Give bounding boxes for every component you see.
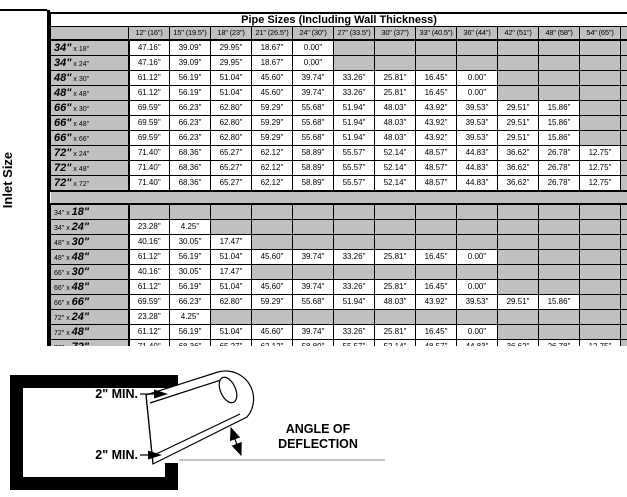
value-cell: 29.51" xyxy=(498,131,539,146)
value-cell: 56.19" xyxy=(170,250,211,265)
value-cell: 30.05" xyxy=(170,235,211,250)
page-border-line xyxy=(0,9,47,11)
row-label-small: 72" x xyxy=(54,315,72,322)
row-label-bold: 34" xyxy=(54,57,71,69)
row-label-small: x 24" xyxy=(71,151,89,158)
row-label: 66" x 30" xyxy=(51,101,129,116)
value-cell: 65.27" xyxy=(211,146,252,161)
table-row: 66" x 66"69.59"66.23"62.80"59.29"55.68"5… xyxy=(51,295,627,310)
value-cell: 71.40" xyxy=(129,340,170,347)
row-label-small: 34" x xyxy=(54,210,72,217)
angle-arrow xyxy=(231,428,241,455)
value-cell: 51.04" xyxy=(211,71,252,86)
value-cell: 58.89" xyxy=(293,176,334,192)
row-label: 66" x 48" xyxy=(51,116,129,131)
value-cell: 69.59" xyxy=(129,116,170,131)
row-label: 72" x 72" xyxy=(51,176,129,192)
empty-cell xyxy=(416,265,457,280)
row-label-bold: 48" xyxy=(54,87,71,99)
value-cell: 36.62" xyxy=(498,340,539,347)
value-cell: 47.16" xyxy=(129,40,170,56)
empty-cell xyxy=(539,280,580,295)
empty-cell xyxy=(375,56,416,71)
value-cell: 62.12" xyxy=(252,340,293,347)
empty-cell xyxy=(621,310,627,325)
value-cell: 48.03" xyxy=(375,295,416,310)
row-label-small: 48" x xyxy=(54,255,72,262)
table-row: 48" x 48"61.12"56.19"51.04"45.60"39.74"3… xyxy=(51,250,627,265)
empty-cell xyxy=(580,280,621,295)
value-cell: 62.80" xyxy=(211,116,252,131)
row-label-small: 72" x xyxy=(54,345,72,347)
empty-cell xyxy=(539,265,580,280)
empty-cell xyxy=(621,325,627,340)
value-cell: 39.74" xyxy=(293,325,334,340)
value-cell: 0.00" xyxy=(457,280,498,295)
row-label: 72" x 48" xyxy=(51,161,129,176)
value-cell: 55.57" xyxy=(334,176,375,192)
value-cell: 65.27" xyxy=(211,340,252,347)
empty-cell xyxy=(498,280,539,295)
empty-cell xyxy=(457,310,498,325)
empty-cell xyxy=(580,204,621,220)
empty-cell xyxy=(252,220,293,235)
empty-cell xyxy=(416,56,457,71)
empty-cell xyxy=(539,250,580,265)
empty-cell xyxy=(334,265,375,280)
row-label-small: x 48" xyxy=(71,121,89,128)
value-cell: 39.74" xyxy=(293,250,334,265)
value-cell: 25.81" xyxy=(375,71,416,86)
row-label-bold: 72" xyxy=(54,162,71,174)
value-cell: 48.57" xyxy=(416,146,457,161)
value-cell: 39.74" xyxy=(293,71,334,86)
value-cell: 59.29" xyxy=(252,131,293,146)
value-cell: 39.74" xyxy=(293,86,334,101)
value-cell: 25.81" xyxy=(375,325,416,340)
row-label-bold: 34" xyxy=(54,42,71,54)
empty-cell xyxy=(580,56,621,71)
pipe-sizes-table-container: Pipe Sizes (Including Wall Thickness) 12… xyxy=(47,10,627,346)
value-cell: 68.36" xyxy=(170,340,211,347)
row-label: 66" x 66" xyxy=(51,295,129,310)
value-cell: 12.75" xyxy=(580,161,621,176)
value-cell: 16.45" xyxy=(416,280,457,295)
row-label-bold: 48" xyxy=(72,281,89,293)
empty-cell xyxy=(621,161,627,176)
value-cell: 61.12" xyxy=(129,71,170,86)
empty-cell xyxy=(170,204,211,220)
row-label: 72" x 24" xyxy=(51,310,129,325)
empty-cell xyxy=(375,40,416,56)
empty-cell xyxy=(498,235,539,250)
value-cell: 65.27" xyxy=(211,176,252,192)
row-label-bold: 66" xyxy=(54,102,71,114)
empty-cell xyxy=(416,204,457,220)
empty-cell xyxy=(580,220,621,235)
value-cell: 56.19" xyxy=(170,86,211,101)
row-label: 72" x 48" xyxy=(51,325,129,340)
inlet-size-axis-label: Inlet Size xyxy=(0,120,16,240)
value-cell: 55.57" xyxy=(334,340,375,347)
row-label-bold: 66" xyxy=(54,132,71,144)
value-cell: 62.80" xyxy=(211,131,252,146)
value-cell: 43.92" xyxy=(416,101,457,116)
value-cell: 58.89" xyxy=(293,340,334,347)
empty-cell xyxy=(621,56,627,71)
value-cell: 59.29" xyxy=(252,295,293,310)
row-label-small: x 48" xyxy=(71,91,89,98)
value-cell: 33.26" xyxy=(334,250,375,265)
value-cell: 40.16" xyxy=(129,235,170,250)
row-label-small: x 66" xyxy=(71,136,89,143)
row-label-bold: 72" xyxy=(54,177,71,189)
value-cell: 33.26" xyxy=(334,86,375,101)
table-row: 66" x 48"61.12"56.19"51.04"45.60"39.74"3… xyxy=(51,280,627,295)
value-cell: 17.47" xyxy=(211,265,252,280)
row-label: 48" x 48" xyxy=(51,250,129,265)
value-cell: 48.03" xyxy=(375,116,416,131)
value-cell: 33.26" xyxy=(334,325,375,340)
value-cell: 12.75" xyxy=(580,146,621,161)
table-row: 72" x 72"71.40"68.36"65.27"62.12"58.89"5… xyxy=(51,176,627,192)
value-cell: 69.59" xyxy=(129,295,170,310)
value-cell: 55.68" xyxy=(293,116,334,131)
row-label-bold: 48" xyxy=(72,326,89,338)
value-cell: 33.26" xyxy=(334,71,375,86)
value-cell: 55.57" xyxy=(334,161,375,176)
row-label-bold: 72" xyxy=(72,341,89,347)
row-label-bold: 48" xyxy=(72,251,89,263)
value-cell: 4.25" xyxy=(170,310,211,325)
empty-cell xyxy=(334,220,375,235)
empty-cell xyxy=(621,295,627,310)
empty-cell xyxy=(416,220,457,235)
table-separator xyxy=(51,191,627,204)
value-cell: 48.57" xyxy=(416,176,457,192)
row-label: 34" x 18" xyxy=(51,40,129,56)
value-cell: 16.45" xyxy=(416,71,457,86)
empty-cell xyxy=(293,235,334,250)
row-label-bold: 30" xyxy=(72,236,89,248)
value-cell: 48.03" xyxy=(375,131,416,146)
empty-cell xyxy=(498,265,539,280)
row-label: 66" x 66" xyxy=(51,131,129,146)
row-label-small: x 30" xyxy=(71,106,89,113)
value-cell: 39.53" xyxy=(457,131,498,146)
empty-cell xyxy=(621,220,627,235)
row-label: 34" x 18" xyxy=(51,204,129,220)
column-header: 48" (58") xyxy=(539,27,580,41)
empty-cell xyxy=(334,40,375,56)
value-cell: 33.26" xyxy=(334,280,375,295)
value-cell: 62.80" xyxy=(211,295,252,310)
row-label: 72" x 24" xyxy=(51,146,129,161)
pipe-sizes-table: Pipe Sizes (Including Wall Thickness) 12… xyxy=(50,12,627,346)
value-cell: 58.89" xyxy=(293,146,334,161)
empty-cell xyxy=(621,340,627,347)
row-label-bold: 66" xyxy=(54,117,71,129)
value-cell: 25.81" xyxy=(375,280,416,295)
empty-cell xyxy=(580,86,621,101)
value-cell: 61.12" xyxy=(129,325,170,340)
value-cell: 61.12" xyxy=(129,250,170,265)
row-label-bold: 66" xyxy=(72,296,89,308)
empty-cell xyxy=(621,71,627,86)
table-row: 48" x 48"61.12"56.19"51.04"45.60"39.74"3… xyxy=(51,86,627,101)
empty-cell xyxy=(293,204,334,220)
value-cell: 29.51" xyxy=(498,295,539,310)
table-row: 66" x 66"69.59"66.23"62.80"59.29"55.68"5… xyxy=(51,131,627,146)
value-cell: 45.60" xyxy=(252,280,293,295)
value-cell: 39.53" xyxy=(457,101,498,116)
empty-cell xyxy=(539,40,580,56)
value-cell: 51.94" xyxy=(334,295,375,310)
value-cell: 48.57" xyxy=(416,340,457,347)
corner-cell xyxy=(51,27,129,41)
value-cell: 55.68" xyxy=(293,131,334,146)
table-row: 72" x 24"71.40"68.36"65.27"62.12"58.89"5… xyxy=(51,146,627,161)
value-cell: 16.45" xyxy=(416,86,457,101)
empty-cell xyxy=(375,204,416,220)
empty-cell xyxy=(293,310,334,325)
empty-cell xyxy=(539,325,580,340)
empty-cell xyxy=(621,40,627,56)
empty-cell xyxy=(539,235,580,250)
empty-cell xyxy=(375,265,416,280)
empty-cell xyxy=(580,235,621,250)
value-cell: 66.23" xyxy=(170,101,211,116)
row-label: 72" x 72" xyxy=(51,340,129,347)
value-cell: 48.03" xyxy=(375,101,416,116)
value-cell: 45.60" xyxy=(252,86,293,101)
column-header: 15" (19.5") xyxy=(170,27,211,41)
value-cell: 71.40" xyxy=(129,161,170,176)
empty-cell xyxy=(498,56,539,71)
empty-cell xyxy=(211,220,252,235)
empty-cell xyxy=(416,40,457,56)
value-cell: 68.36" xyxy=(170,176,211,192)
column-header-row: 12" (16")15" (19.5")18" (23")21" (26.5")… xyxy=(51,27,627,41)
row-label-small: 72" x xyxy=(54,330,72,337)
empty-cell xyxy=(621,131,627,146)
empty-cell xyxy=(580,116,621,131)
table-row: 72" x 72"71.40"68.36"65.27"62.12"58.89"5… xyxy=(51,340,627,347)
value-cell: 44.83" xyxy=(457,161,498,176)
value-cell: 15.86" xyxy=(539,101,580,116)
empty-cell xyxy=(621,250,627,265)
value-cell: 55.68" xyxy=(293,101,334,116)
value-cell: 0.00" xyxy=(293,56,334,71)
empty-cell xyxy=(498,250,539,265)
empty-cell xyxy=(621,116,627,131)
row-label-small: 48" x xyxy=(54,240,72,247)
value-cell: 18.67" xyxy=(252,56,293,71)
column-header: 27" (33.5") xyxy=(334,27,375,41)
value-cell: 4.25" xyxy=(170,220,211,235)
top-clearance-label: 2" MIN. xyxy=(95,387,138,401)
value-cell: 25.81" xyxy=(375,250,416,265)
value-cell: 62.12" xyxy=(252,146,293,161)
value-cell: 40.16" xyxy=(129,265,170,280)
table-row: 66" x 48"69.59"66.23"62.80"59.29"55.68"5… xyxy=(51,116,627,131)
row-label-small: x 48" xyxy=(71,166,89,173)
table-row: 72" x 24"23.28"4.25" xyxy=(51,310,627,325)
value-cell: 18.67" xyxy=(252,40,293,56)
row-label: 66" x 48" xyxy=(51,280,129,295)
value-cell: 36.62" xyxy=(498,176,539,192)
value-cell: 29.51" xyxy=(498,116,539,131)
value-cell: 36.62" xyxy=(498,161,539,176)
angle-of-deflection-diagram: 2" MIN. 2" MIN. ANGLE OF DEFLECTION xyxy=(0,367,627,497)
empty-cell xyxy=(621,280,627,295)
empty-cell xyxy=(580,101,621,116)
empty-cell xyxy=(539,220,580,235)
section-separator-body xyxy=(51,191,627,204)
value-cell: 52.14" xyxy=(375,340,416,347)
empty-cell xyxy=(498,220,539,235)
value-cell: 52.14" xyxy=(375,176,416,192)
value-cell: 68.36" xyxy=(170,146,211,161)
value-cell: 59.29" xyxy=(252,116,293,131)
value-cell: 0.00" xyxy=(457,71,498,86)
row-label-small: 66" x xyxy=(54,285,72,292)
empty-cell xyxy=(457,40,498,56)
value-cell: 51.04" xyxy=(211,325,252,340)
value-cell: 56.19" xyxy=(170,71,211,86)
empty-cell xyxy=(416,235,457,250)
empty-cell xyxy=(211,204,252,220)
value-cell: 51.94" xyxy=(334,131,375,146)
empty-cell xyxy=(416,310,457,325)
row-label-small: x 24" xyxy=(71,61,89,68)
value-cell: 44.83" xyxy=(457,340,498,347)
value-cell: 61.12" xyxy=(129,280,170,295)
value-cell: 56.19" xyxy=(170,325,211,340)
value-cell: 36.62" xyxy=(498,146,539,161)
value-cell: 0.00" xyxy=(457,325,498,340)
value-cell: 30.05" xyxy=(170,265,211,280)
row-label-bold: 48" xyxy=(54,72,71,84)
value-cell: 51.94" xyxy=(334,116,375,131)
empty-cell xyxy=(621,176,627,192)
empty-cell xyxy=(457,204,498,220)
value-cell: 0.00" xyxy=(457,86,498,101)
empty-cell xyxy=(580,131,621,146)
value-cell: 69.59" xyxy=(129,131,170,146)
empty-cell xyxy=(580,40,621,56)
value-cell: 62.12" xyxy=(252,176,293,192)
empty-cell xyxy=(498,325,539,340)
value-cell: 56.19" xyxy=(170,280,211,295)
section-upper: 34" x 18"47.16"39.09"29.95"18.67"0.00"34… xyxy=(51,40,627,191)
value-cell: 23.28" xyxy=(129,220,170,235)
value-cell: 65.27" xyxy=(211,161,252,176)
value-cell: 66.23" xyxy=(170,295,211,310)
value-cell: 51.04" xyxy=(211,86,252,101)
empty-cell xyxy=(539,71,580,86)
value-cell: 48.57" xyxy=(416,161,457,176)
value-cell: 43.92" xyxy=(416,295,457,310)
value-cell: 47.16" xyxy=(129,56,170,71)
table-row: 66" x 30"40.16"30.05"17.47" xyxy=(51,265,627,280)
value-cell: 43.92" xyxy=(416,131,457,146)
value-cell: 55.68" xyxy=(293,295,334,310)
value-cell: 26.78" xyxy=(539,176,580,192)
value-cell: 45.60" xyxy=(252,71,293,86)
empty-cell xyxy=(252,310,293,325)
empty-cell xyxy=(621,235,627,250)
value-cell: 29.95" xyxy=(211,40,252,56)
value-cell: 15.86" xyxy=(539,295,580,310)
empty-cell xyxy=(539,56,580,71)
empty-cell xyxy=(580,310,621,325)
empty-cell xyxy=(334,235,375,250)
value-cell: 71.40" xyxy=(129,146,170,161)
table-title: Pipe Sizes (Including Wall Thickness) xyxy=(51,13,627,27)
empty-cell xyxy=(457,220,498,235)
value-cell: 58.89" xyxy=(293,161,334,176)
empty-cell xyxy=(539,86,580,101)
row-label: 48" x 30" xyxy=(51,71,129,86)
column-header: 54" (65") xyxy=(580,27,621,41)
value-cell: 44.83" xyxy=(457,176,498,192)
value-cell: 66.23" xyxy=(170,131,211,146)
empty-cell xyxy=(498,204,539,220)
empty-cell xyxy=(539,204,580,220)
value-cell: 26.78" xyxy=(539,161,580,176)
empty-cell xyxy=(621,204,627,220)
column-header: 42" (51") xyxy=(498,27,539,41)
table-row: 34" x 18"47.16"39.09"29.95"18.67"0.00" xyxy=(51,40,627,56)
empty-cell xyxy=(498,310,539,325)
section-lower: 34" x 18"34" x 24"23.28"4.25"48" x 30"40… xyxy=(51,204,627,346)
empty-cell xyxy=(375,235,416,250)
empty-cell xyxy=(580,325,621,340)
value-cell: 66.23" xyxy=(170,116,211,131)
value-cell: 51.04" xyxy=(211,280,252,295)
value-cell: 61.12" xyxy=(129,86,170,101)
column-header: 30" (37") xyxy=(375,27,416,41)
angle-of-deflection-label-line1: ANGLE OF xyxy=(286,422,351,436)
value-cell: 52.14" xyxy=(375,146,416,161)
value-cell: 51.04" xyxy=(211,250,252,265)
empty-cell xyxy=(621,101,627,116)
value-cell: 62.80" xyxy=(211,101,252,116)
row-label: 66" x 30" xyxy=(51,265,129,280)
empty-cell xyxy=(252,235,293,250)
angle-of-deflection-label-line2: DEFLECTION xyxy=(278,437,358,451)
value-cell: 39.74" xyxy=(293,280,334,295)
empty-cell xyxy=(293,220,334,235)
value-cell: 71.40" xyxy=(129,176,170,192)
value-cell: 43.92" xyxy=(416,116,457,131)
value-cell: 15.86" xyxy=(539,116,580,131)
empty-cell xyxy=(580,250,621,265)
value-cell: 15.86" xyxy=(539,131,580,146)
empty-cell xyxy=(580,265,621,280)
empty-cell xyxy=(621,146,627,161)
row-label-small: x 18" xyxy=(71,46,89,53)
value-cell: 69.59" xyxy=(129,101,170,116)
row-label-bold: 72" xyxy=(54,147,71,159)
value-cell: 29.51" xyxy=(498,101,539,116)
empty-cell xyxy=(498,86,539,101)
empty-cell xyxy=(580,295,621,310)
column-header: 12" (16") xyxy=(129,27,170,41)
empty-cell xyxy=(334,310,375,325)
value-cell: 16.45" xyxy=(416,250,457,265)
